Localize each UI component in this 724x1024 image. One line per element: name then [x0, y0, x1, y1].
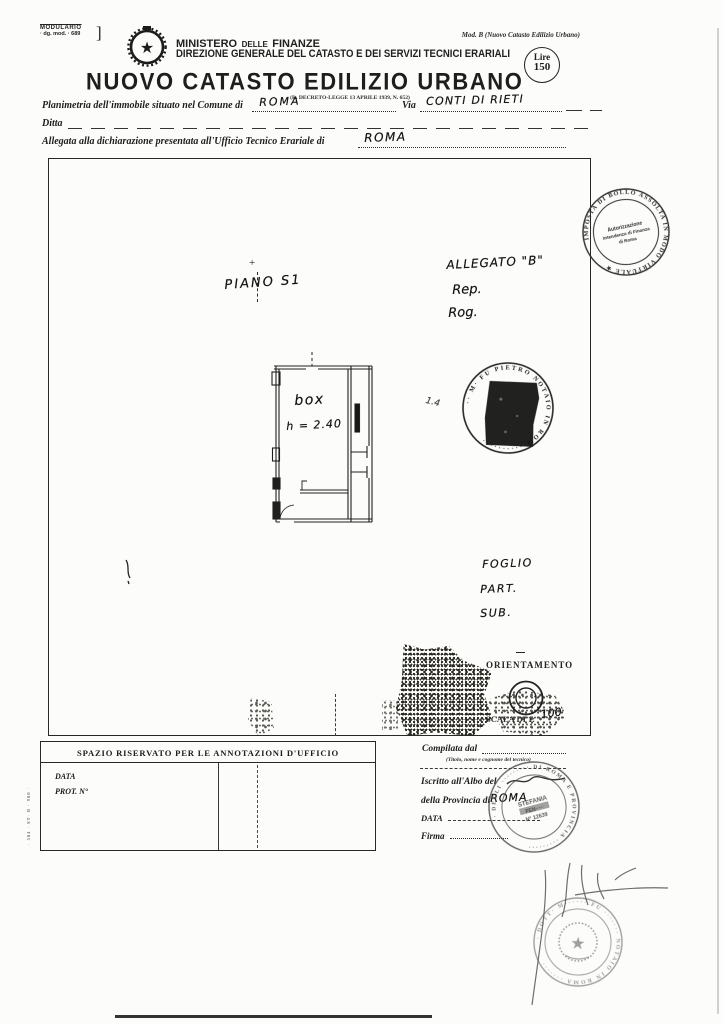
- state-emblem-icon: ★: [126, 25, 168, 67]
- firma-label: Firma: [421, 831, 445, 841]
- compiled-data-label: DATA: [421, 813, 443, 823]
- annotations-data-label: DATA: [55, 772, 75, 781]
- direction-heading: DIREZIONE GENERALE DEL CATASTO E DEI SER…: [176, 48, 510, 60]
- dashed-divider-mark: [335, 694, 336, 736]
- page-title: NUOVO CATASTO EDILIZIO URBANO: [86, 68, 524, 96]
- comune-value: ROMA: [259, 95, 301, 109]
- floor-plan-drawing: [260, 350, 390, 530]
- scala-value: 100: [540, 705, 562, 720]
- end-dash-1: [566, 110, 582, 111]
- bollo-center-3: di Roma: [618, 236, 637, 245]
- lire-value: 150: [525, 62, 559, 73]
- ink-blob: [482, 378, 541, 450]
- room-label: box: [294, 391, 325, 409]
- annotations-prot-label: PROT. N°: [55, 787, 88, 796]
- cross-mark: +: [249, 257, 255, 269]
- bollo-virtuale-stamp: IMPOSTA DI BOLLO ASSOLTA IN MODO VIRTUAL…: [571, 177, 680, 286]
- svg-text:★: ★: [140, 40, 154, 57]
- orientamento-tick: [516, 652, 525, 653]
- line3-label: Allegata alla dichiarazione presentata a…: [42, 136, 325, 147]
- scanned-document-page: MODULARIO · dg. mod. · 689 ] ★ MINISTERO…: [0, 0, 724, 1024]
- annotations-box: SPAZIO RISERVATO PER LE ANNOTAZIONI D'UF…: [40, 741, 376, 851]
- sub-note: SUB.: [480, 606, 513, 620]
- lire-150-stamp: Lire 150: [524, 47, 560, 83]
- compilata-label: Compilata dal: [422, 744, 477, 754]
- annotations-divider-dashed: [257, 765, 258, 848]
- end-dash-2: [590, 110, 602, 111]
- modulario-bracket: ]: [96, 23, 102, 43]
- ufficio-value: ROMA: [364, 130, 407, 145]
- orientamento-label: ORIENTAMENTO: [486, 660, 573, 670]
- scan-noise-small-2: [382, 700, 398, 730]
- ink-smudge-mark: [122, 558, 136, 586]
- ditta-label: Ditta: [42, 118, 63, 129]
- signature-strokes: [520, 855, 680, 1015]
- part-note: PART.: [480, 582, 518, 596]
- via-label: Via: [402, 100, 416, 111]
- provincia-label: della Provincia di: [421, 796, 490, 806]
- via-value: CONTI DI RIETI: [426, 92, 524, 108]
- edge-print: · 584 · ST· B · 980 ·: [26, 787, 31, 845]
- scala-label: SCALA DI 1:: [486, 714, 535, 724]
- rog-note: Rog.: [448, 305, 478, 321]
- scan-edge-shadow: [717, 28, 719, 1014]
- annotations-title: SPAZIO RISERVATO PER LE ANNOTAZIONI D'UF…: [41, 742, 375, 763]
- notary-stamp-mid: ·· M· FU PIETRO NOTAIO IN ROM ··········: [455, 355, 561, 461]
- ditta-fill-line: [68, 128, 596, 129]
- line1-label: Planimetria dell'immobile situato nel Co…: [42, 100, 243, 111]
- annotations-divider-solid: [218, 763, 219, 850]
- rep-note: Rep.: [452, 282, 482, 298]
- foglio-note: FOGLIO: [482, 556, 533, 571]
- scan-bottom-line: [115, 1015, 432, 1018]
- model-reference: Mod. B (Nuovo Catasto Edilizio Urbano): [430, 31, 580, 39]
